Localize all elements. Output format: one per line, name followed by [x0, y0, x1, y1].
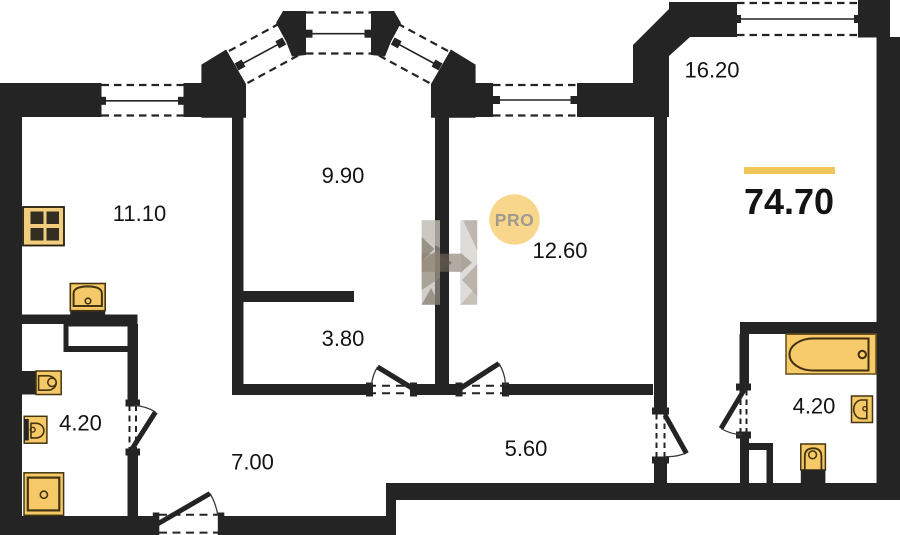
svg-text:5.60: 5.60	[505, 436, 548, 461]
svg-text:3.80: 3.80	[322, 326, 365, 351]
svg-text:4.20: 4.20	[59, 411, 102, 436]
svg-text:9.90: 9.90	[322, 163, 365, 188]
svg-text:4.20: 4.20	[793, 394, 836, 419]
svg-text:7.00: 7.00	[231, 450, 274, 475]
svg-text:11.10: 11.10	[113, 201, 166, 226]
svg-text:PRO: PRO	[495, 210, 534, 230]
svg-text:16.20: 16.20	[684, 58, 739, 83]
svg-text:12.60: 12.60	[532, 238, 587, 263]
svg-text:74.70: 74.70	[744, 181, 834, 222]
